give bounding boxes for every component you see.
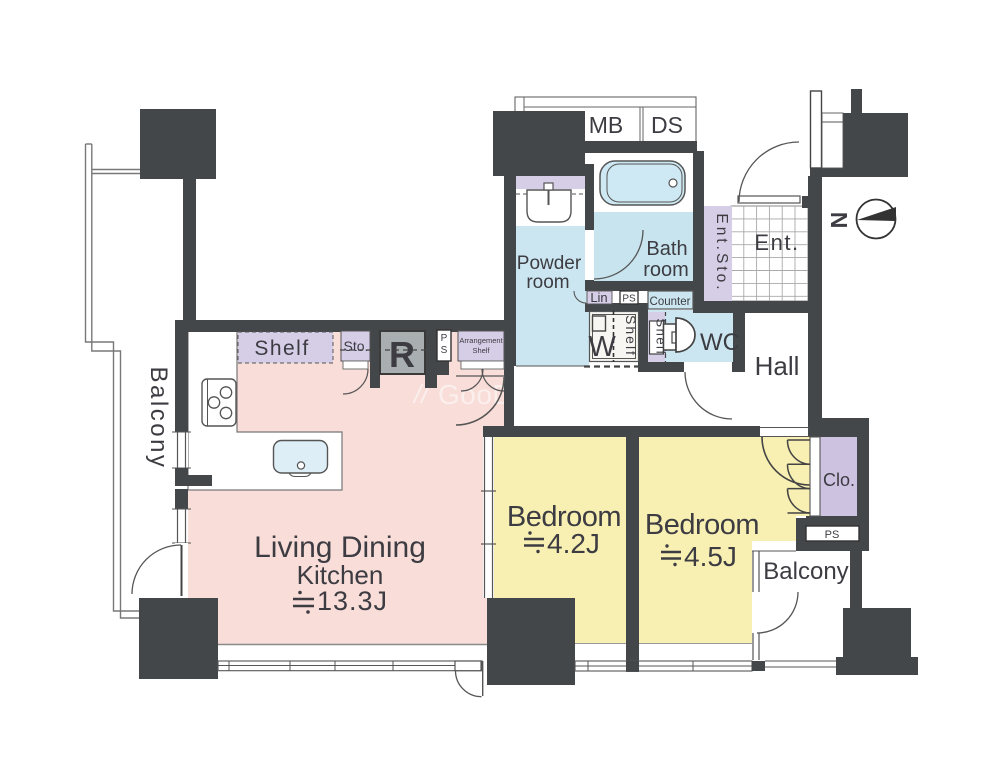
svg-text:Shelf: Shelf — [472, 346, 490, 355]
svg-text:Shelf: Shelf — [623, 315, 639, 357]
svg-text:P: P — [441, 333, 448, 344]
svg-text:room: room — [643, 259, 689, 281]
svg-text:Arrangement: Arrangement — [459, 336, 503, 345]
svg-text:Clo.: Clo. — [823, 470, 855, 490]
svg-text:Lin: Lin — [590, 290, 607, 305]
svg-text:Ent.: Ent. — [754, 230, 799, 255]
svg-text:4.5J: 4.5J — [684, 541, 737, 572]
svg-text:room: room — [526, 272, 569, 293]
svg-text:Hall: Hall — [755, 351, 800, 381]
svg-text:W: W — [588, 331, 616, 363]
svg-text:DS: DS — [651, 112, 683, 138]
svg-text:R: R — [389, 334, 415, 375]
svg-text:PS: PS — [825, 529, 840, 541]
svg-text:4.2J: 4.2J — [547, 528, 600, 559]
svg-text:Counter: Counter — [650, 296, 691, 308]
svg-text:MB: MB — [589, 112, 624, 138]
svg-text:WC: WC — [700, 329, 740, 356]
svg-text:13.3J: 13.3J — [317, 586, 388, 616]
svg-text:Shelf: Shelf — [254, 337, 309, 360]
svg-text:PS: PS — [622, 294, 636, 305]
svg-text:Powder: Powder — [517, 253, 582, 274]
svg-text:Balcony: Balcony — [145, 367, 172, 470]
svg-text:Sto.: Sto. — [344, 338, 369, 354]
svg-text:Balcony: Balcony — [763, 558, 848, 585]
svg-text:Ent.Sto.: Ent.Sto. — [713, 213, 730, 292]
svg-text:N: N — [826, 212, 852, 229]
svg-text:Bedroom: Bedroom — [645, 509, 759, 541]
svg-text:S: S — [441, 345, 448, 356]
svg-text:Bath: Bath — [646, 238, 687, 260]
